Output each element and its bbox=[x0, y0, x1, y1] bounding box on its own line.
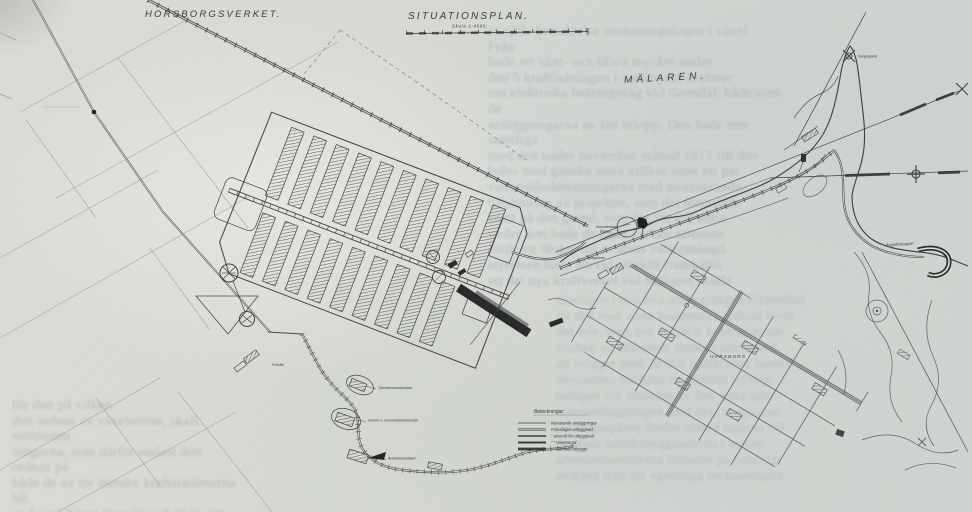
field-boundary-lines bbox=[0, 20, 338, 512]
legend-item-0: Nuvarande anläggningar bbox=[551, 421, 597, 426]
label-arbetarebostader: Arbetarebostäder bbox=[387, 457, 417, 461]
label-magasiner: Magasiner bbox=[588, 256, 606, 260]
factory-buildings-lower-row bbox=[240, 213, 455, 346]
country-road bbox=[33, 0, 302, 334]
outbuildings bbox=[234, 217, 648, 470]
survey-lines bbox=[556, 12, 968, 252]
label-kommendantsbostad-line2: bostad bbox=[600, 230, 610, 234]
coastal-railway bbox=[512, 150, 924, 276]
page-title-left: HORSBORGSVERKET. bbox=[145, 9, 282, 20]
titles: HORSBORGSVERKET. SITUATIONSPLAN. Skala 1… bbox=[145, 9, 707, 86]
legend-item-3: ″ ″ reserverad bbox=[551, 440, 577, 445]
magasin-buildings bbox=[598, 263, 624, 279]
label-forrad: Förråd bbox=[272, 362, 285, 367]
town-buildings bbox=[606, 221, 862, 452]
harbor-jetty bbox=[456, 282, 564, 345]
scale-bar bbox=[406, 28, 588, 35]
park-paths bbox=[835, 252, 968, 470]
page-title-right: SITUATIONSPLAN. bbox=[408, 11, 529, 22]
site-plan-drawing: Förråd Tjänstemannabostad Kasern o. komm… bbox=[0, 0, 972, 512]
label-angbatsbryggan: Ångbåtsbryggan bbox=[885, 240, 914, 247]
main-railway bbox=[148, 0, 588, 226]
survey-cross-right-edge bbox=[956, 83, 968, 95]
label-triangelpunkt: triangelpunkt bbox=[858, 55, 878, 59]
label-horsborg: HORSBORG bbox=[710, 354, 746, 359]
works-complex bbox=[195, 106, 540, 371]
legend-item-4: ″ ″ framtida utbyggn. bbox=[551, 447, 589, 452]
benchmark-marker bbox=[907, 165, 925, 183]
south-road bbox=[302, 334, 574, 472]
scale-label: Skala 1:4000. bbox=[452, 24, 488, 29]
map-labels: Förråd Tjänstemannabostad Kasern o. komm… bbox=[272, 55, 914, 461]
legend-heading: Beteckningar: bbox=[534, 409, 565, 415]
label-kasern: Kasern o. kommendantsbostad bbox=[368, 419, 419, 423]
legend-item-2: ″ avsedd för utbyggnad bbox=[551, 434, 595, 439]
scanned-page: se själv betraktelse anslutningslinjen i… bbox=[0, 0, 972, 512]
dashed-boundary-lines bbox=[304, 30, 526, 160]
label-kommendantsbostad-line1: Kommendants- bbox=[596, 225, 620, 229]
water-label-malaren: MÄLAREN. bbox=[624, 70, 708, 86]
label-tjanstemannabostad: Tjänstemannabostad bbox=[378, 386, 413, 390]
legend: Beteckningar: Nuvarande anläggningar För… bbox=[518, 409, 597, 452]
legend-item-1: Föreslagen utbyggnad bbox=[551, 427, 593, 432]
